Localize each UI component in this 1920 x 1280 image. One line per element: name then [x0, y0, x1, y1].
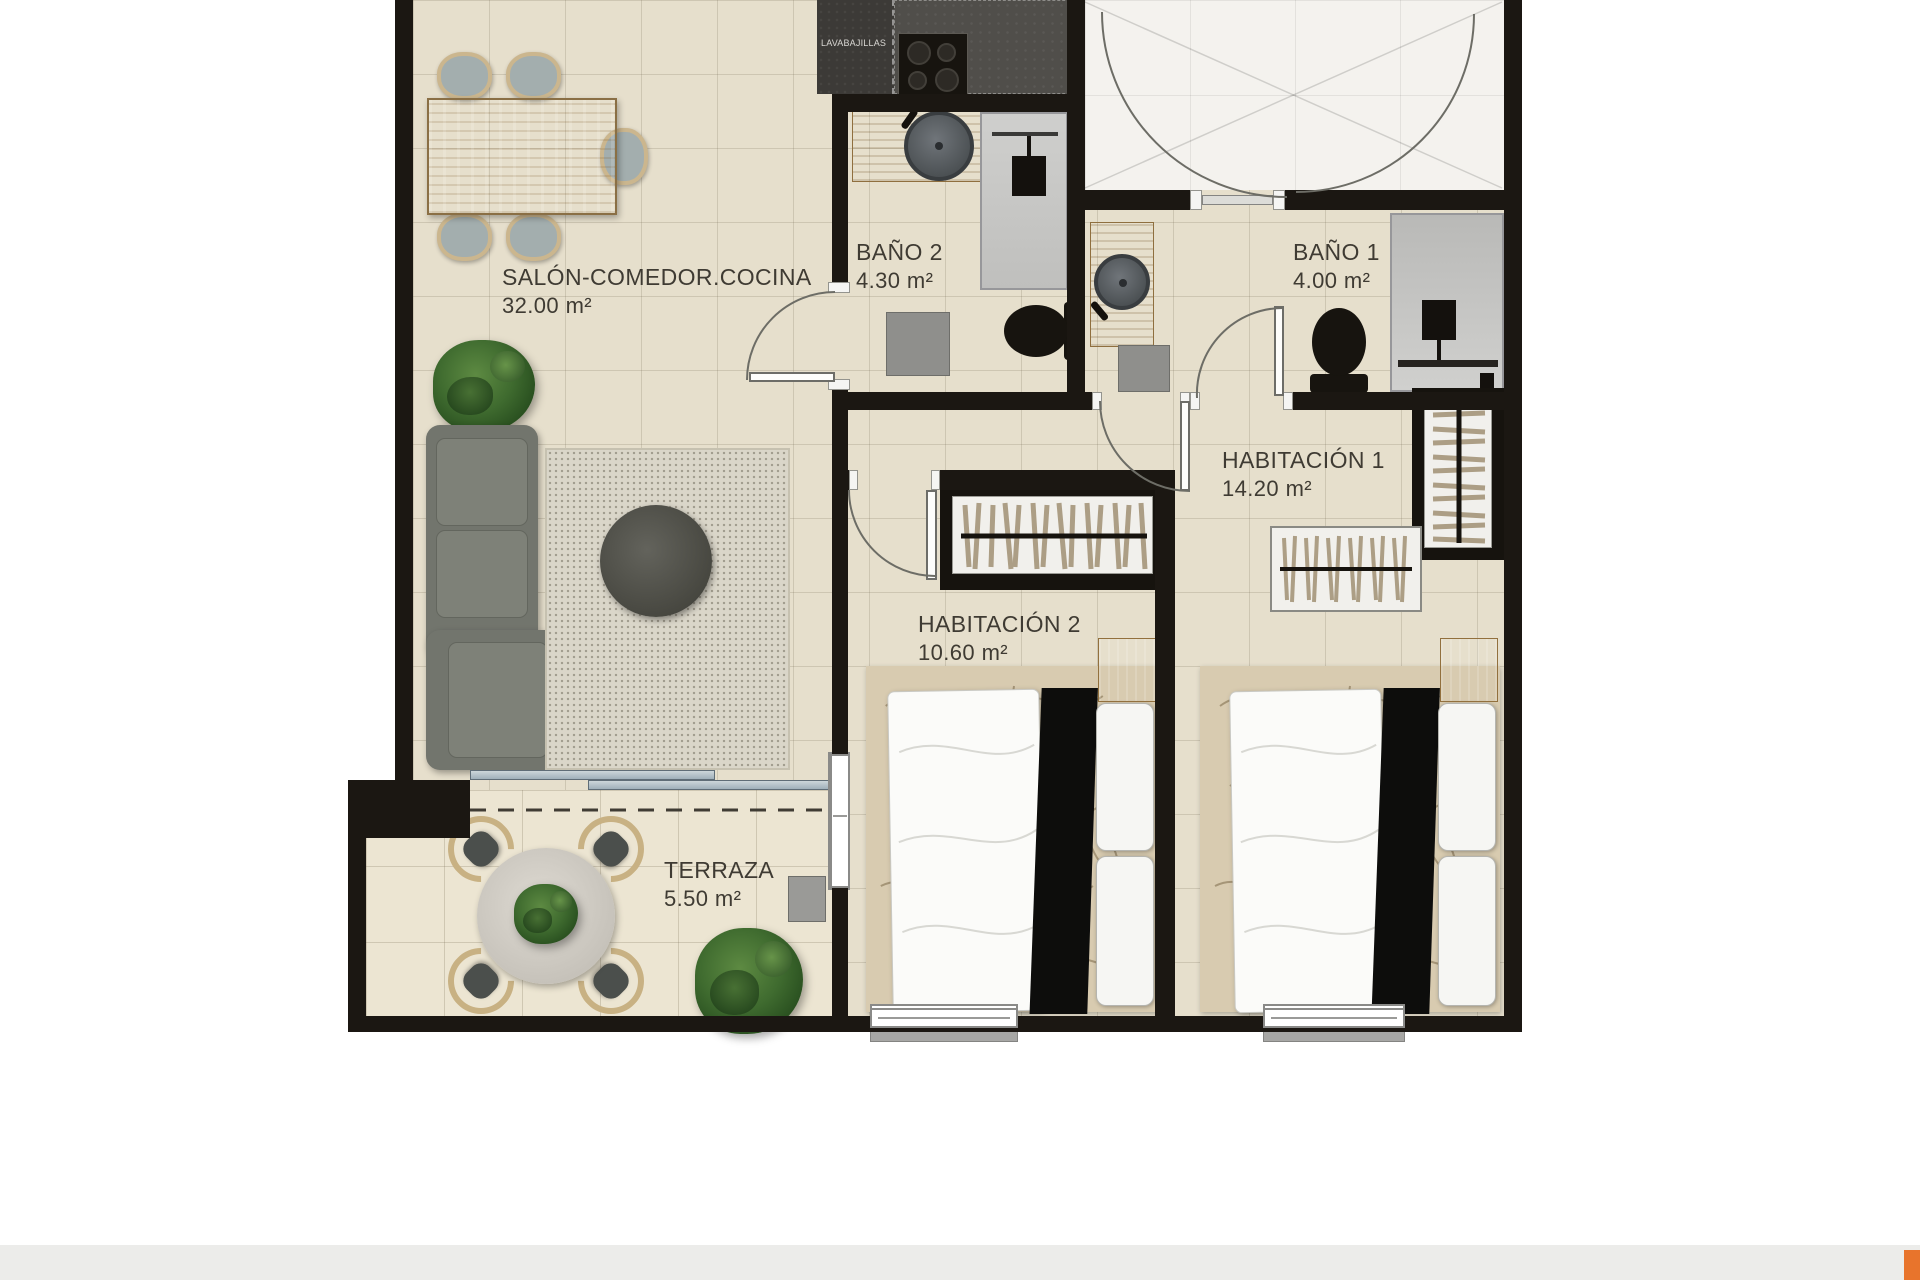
door-jamb	[1190, 392, 1200, 410]
bath2-shower-head-icon	[1012, 156, 1046, 196]
bath1-shower	[1390, 213, 1504, 392]
bath1-toilet	[1308, 304, 1370, 396]
sliding-door-pane	[470, 770, 715, 780]
burner-icon	[908, 71, 927, 90]
sofa-cushion	[436, 438, 528, 526]
label-bedroom1: HABITACIÓN 1 14.20 m²	[1222, 446, 1385, 504]
bedroom1-door-leaf	[1180, 401, 1190, 491]
bedroom2-bed	[887, 689, 1045, 1014]
shower-stem	[1027, 136, 1031, 158]
wall	[348, 780, 470, 838]
door-jamb	[849, 470, 858, 490]
floor-entry-hall	[1085, 0, 1504, 190]
footer-strip	[0, 1245, 1920, 1280]
label-living-room: SALÓN-COMEDOR.COCINA 32.00 m²	[502, 263, 812, 321]
wall	[1067, 94, 1085, 392]
door-jamb	[1190, 190, 1202, 210]
wall	[832, 476, 848, 1016]
floor-plan: LAVABAJILLAS	[0, 0, 1920, 1280]
shower-rail	[992, 132, 1058, 136]
burner-icon	[935, 68, 959, 92]
bedroom1-bed	[1229, 689, 1387, 1014]
cooktop	[898, 33, 968, 99]
burner-icon	[937, 43, 956, 62]
shower-knob	[1480, 373, 1494, 389]
wall	[940, 470, 1175, 490]
coffee-table	[600, 505, 712, 617]
room-area: 4.00 m²	[1293, 267, 1380, 295]
bedroom1-pillow	[1438, 856, 1496, 1006]
dining-chair	[437, 213, 492, 261]
room-area: 4.30 m²	[856, 267, 943, 295]
room-area: 5.50 m²	[664, 885, 774, 913]
bedroom1-nightstand	[1440, 638, 1498, 702]
sofa-cushion	[436, 530, 528, 618]
room-area: 32.00 m²	[502, 292, 812, 320]
bedroom2-pillow	[1096, 856, 1154, 1006]
room-area: 14.20 m²	[1222, 475, 1385, 503]
door-jamb	[828, 282, 850, 293]
shower-bar	[1398, 360, 1498, 367]
wall	[1085, 190, 1190, 210]
bath2-mat	[886, 312, 950, 376]
terrace-chair-seat	[458, 958, 503, 1003]
wall	[1283, 392, 1504, 410]
entry-opening-sill	[1202, 195, 1273, 205]
dining-chair	[437, 52, 492, 100]
bath1-shower-head-icon	[1422, 300, 1456, 340]
dishwasher: LAVABAJILLAS	[817, 0, 894, 94]
bedroom1-wardrobe-tall-interior	[1424, 400, 1492, 548]
bedroom2-wardrobe-interior	[952, 496, 1153, 574]
wall	[832, 392, 1092, 410]
door-jamb	[1283, 392, 1293, 410]
bath2-sink	[904, 111, 974, 181]
label-terrace: TERRAZA 5.50 m²	[664, 856, 774, 914]
bath1-mat	[1118, 345, 1170, 392]
sliding-door-pane	[588, 780, 832, 790]
wall	[1155, 470, 1175, 1016]
room-name: HABITACIÓN 2	[918, 610, 1081, 639]
wall	[1504, 0, 1522, 1032]
dishwasher-label: LAVABAJILLAS	[821, 38, 886, 48]
bedroom1-pillow	[1438, 703, 1496, 851]
burner-icon	[907, 41, 931, 65]
dining-chair	[506, 52, 561, 100]
bath1-sink	[1094, 254, 1150, 310]
room-area: 10.60 m²	[918, 639, 1081, 667]
wall	[832, 94, 848, 292]
label-bath2: BAÑO 2 4.30 m²	[856, 238, 943, 296]
ac-unit	[788, 876, 826, 922]
label-bedroom2: HABITACIÓN 2 10.60 m²	[918, 610, 1081, 668]
bath2-shower	[980, 112, 1068, 290]
label-bath1: BAÑO 1 4.00 m²	[1293, 238, 1380, 296]
dining-chair	[506, 213, 561, 261]
sofa-cushion	[448, 642, 548, 758]
door-jamb	[1273, 190, 1285, 210]
door-jamb	[1092, 392, 1102, 410]
bedroom2-side-window	[830, 754, 850, 888]
bedroom1-wardrobe-low	[1270, 526, 1422, 612]
brand-logo	[1904, 1250, 1920, 1280]
room-name: HABITACIÓN 1	[1222, 446, 1385, 475]
room-name: BAÑO 1	[1293, 238, 1380, 267]
shower-stem	[1437, 340, 1441, 362]
bedroom2-window	[870, 1008, 1018, 1028]
wall	[395, 0, 413, 780]
door-jamb	[931, 470, 940, 490]
dining-table	[427, 98, 617, 215]
terrace-chair-seat	[588, 826, 633, 871]
terrace-chair-seat	[588, 958, 633, 1003]
bath2-door-leaf	[749, 372, 835, 382]
bedroom2-nightstand	[1098, 638, 1156, 702]
room-name: SALÓN-COMEDOR.COCINA	[502, 263, 812, 292]
bath1-door-leaf	[1274, 306, 1284, 396]
bedroom2-pillow	[1096, 703, 1154, 851]
wall	[348, 838, 366, 1032]
room-name: BAÑO 2	[856, 238, 943, 267]
wall	[1285, 190, 1504, 210]
bedroom1-window	[1263, 1008, 1405, 1028]
bedroom2-door-leaf	[926, 490, 937, 580]
wall	[832, 94, 1085, 112]
room-name: TERRAZA	[664, 856, 774, 885]
